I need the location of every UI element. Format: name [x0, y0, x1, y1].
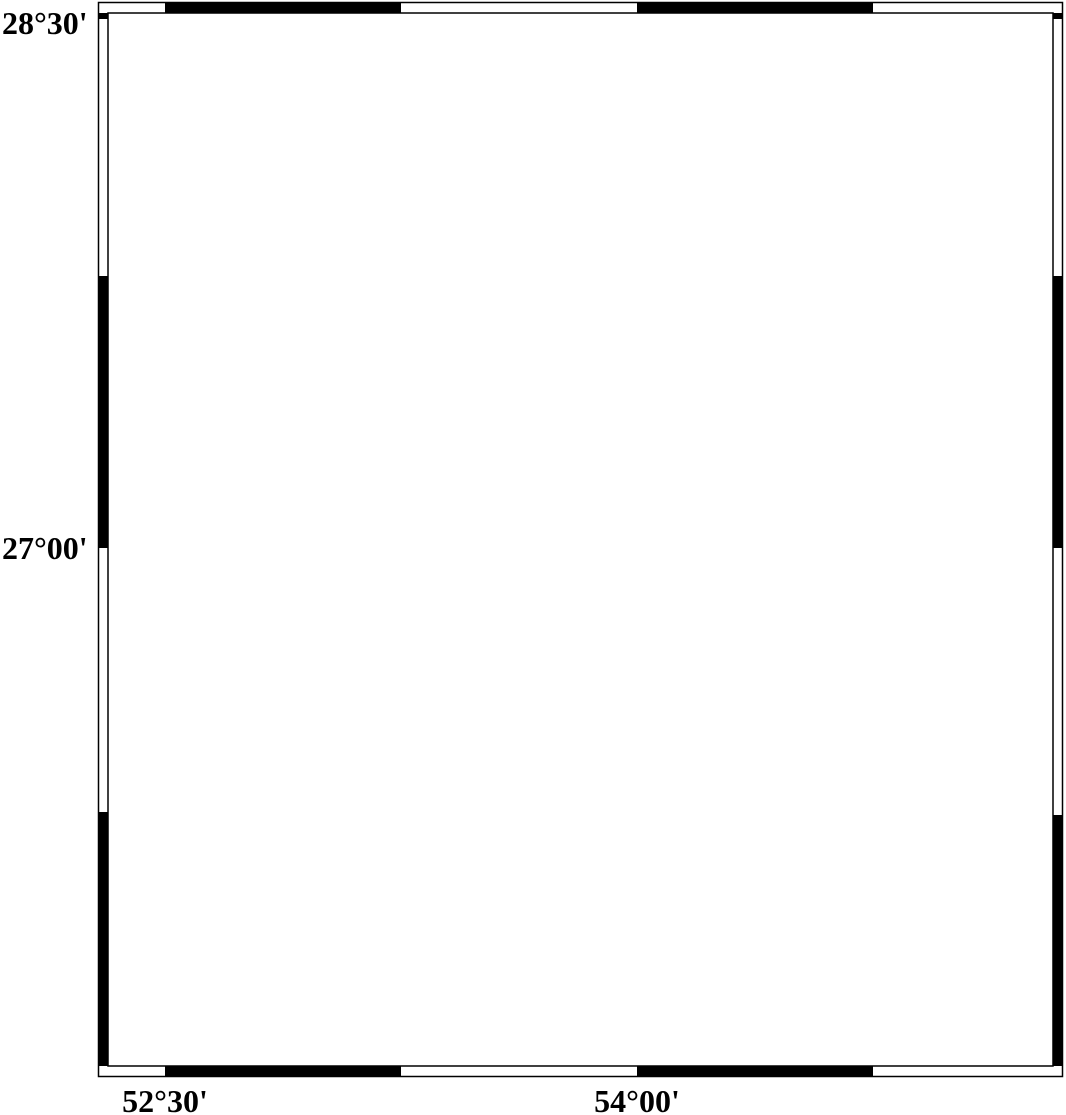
latitude-label: 27°00' [2, 530, 88, 566]
longitude-label: 52°30' [122, 1083, 208, 1115]
frame-tick-segment [99, 812, 108, 1066]
seismicity-map: 60 km Magnitude 34567 28°30' 27°00' 52°3… [0, 0, 1066, 1115]
latitude-label: 28°30' [2, 5, 88, 41]
frame-tick-segment [637, 3, 873, 13]
map-frame [99, 3, 1063, 1077]
frame-tick-segment [637, 1066, 873, 1076]
frame-tick-segment [1054, 815, 1063, 1066]
frame-tick-segment [99, 276, 108, 548]
map-page: 60 km Magnitude 34567 28°30' 27°00' 52°3… [0, 0, 1066, 1115]
frame-tick-segment [99, 13, 108, 19]
frame-tick-segment [165, 3, 401, 13]
frame-tick-segment [1054, 276, 1063, 548]
frame-tick-segment [165, 1066, 401, 1076]
frame-outer [99, 3, 1063, 1077]
frame-tick-segment [1054, 13, 1063, 19]
longitude-label: 54°00' [594, 1083, 680, 1115]
